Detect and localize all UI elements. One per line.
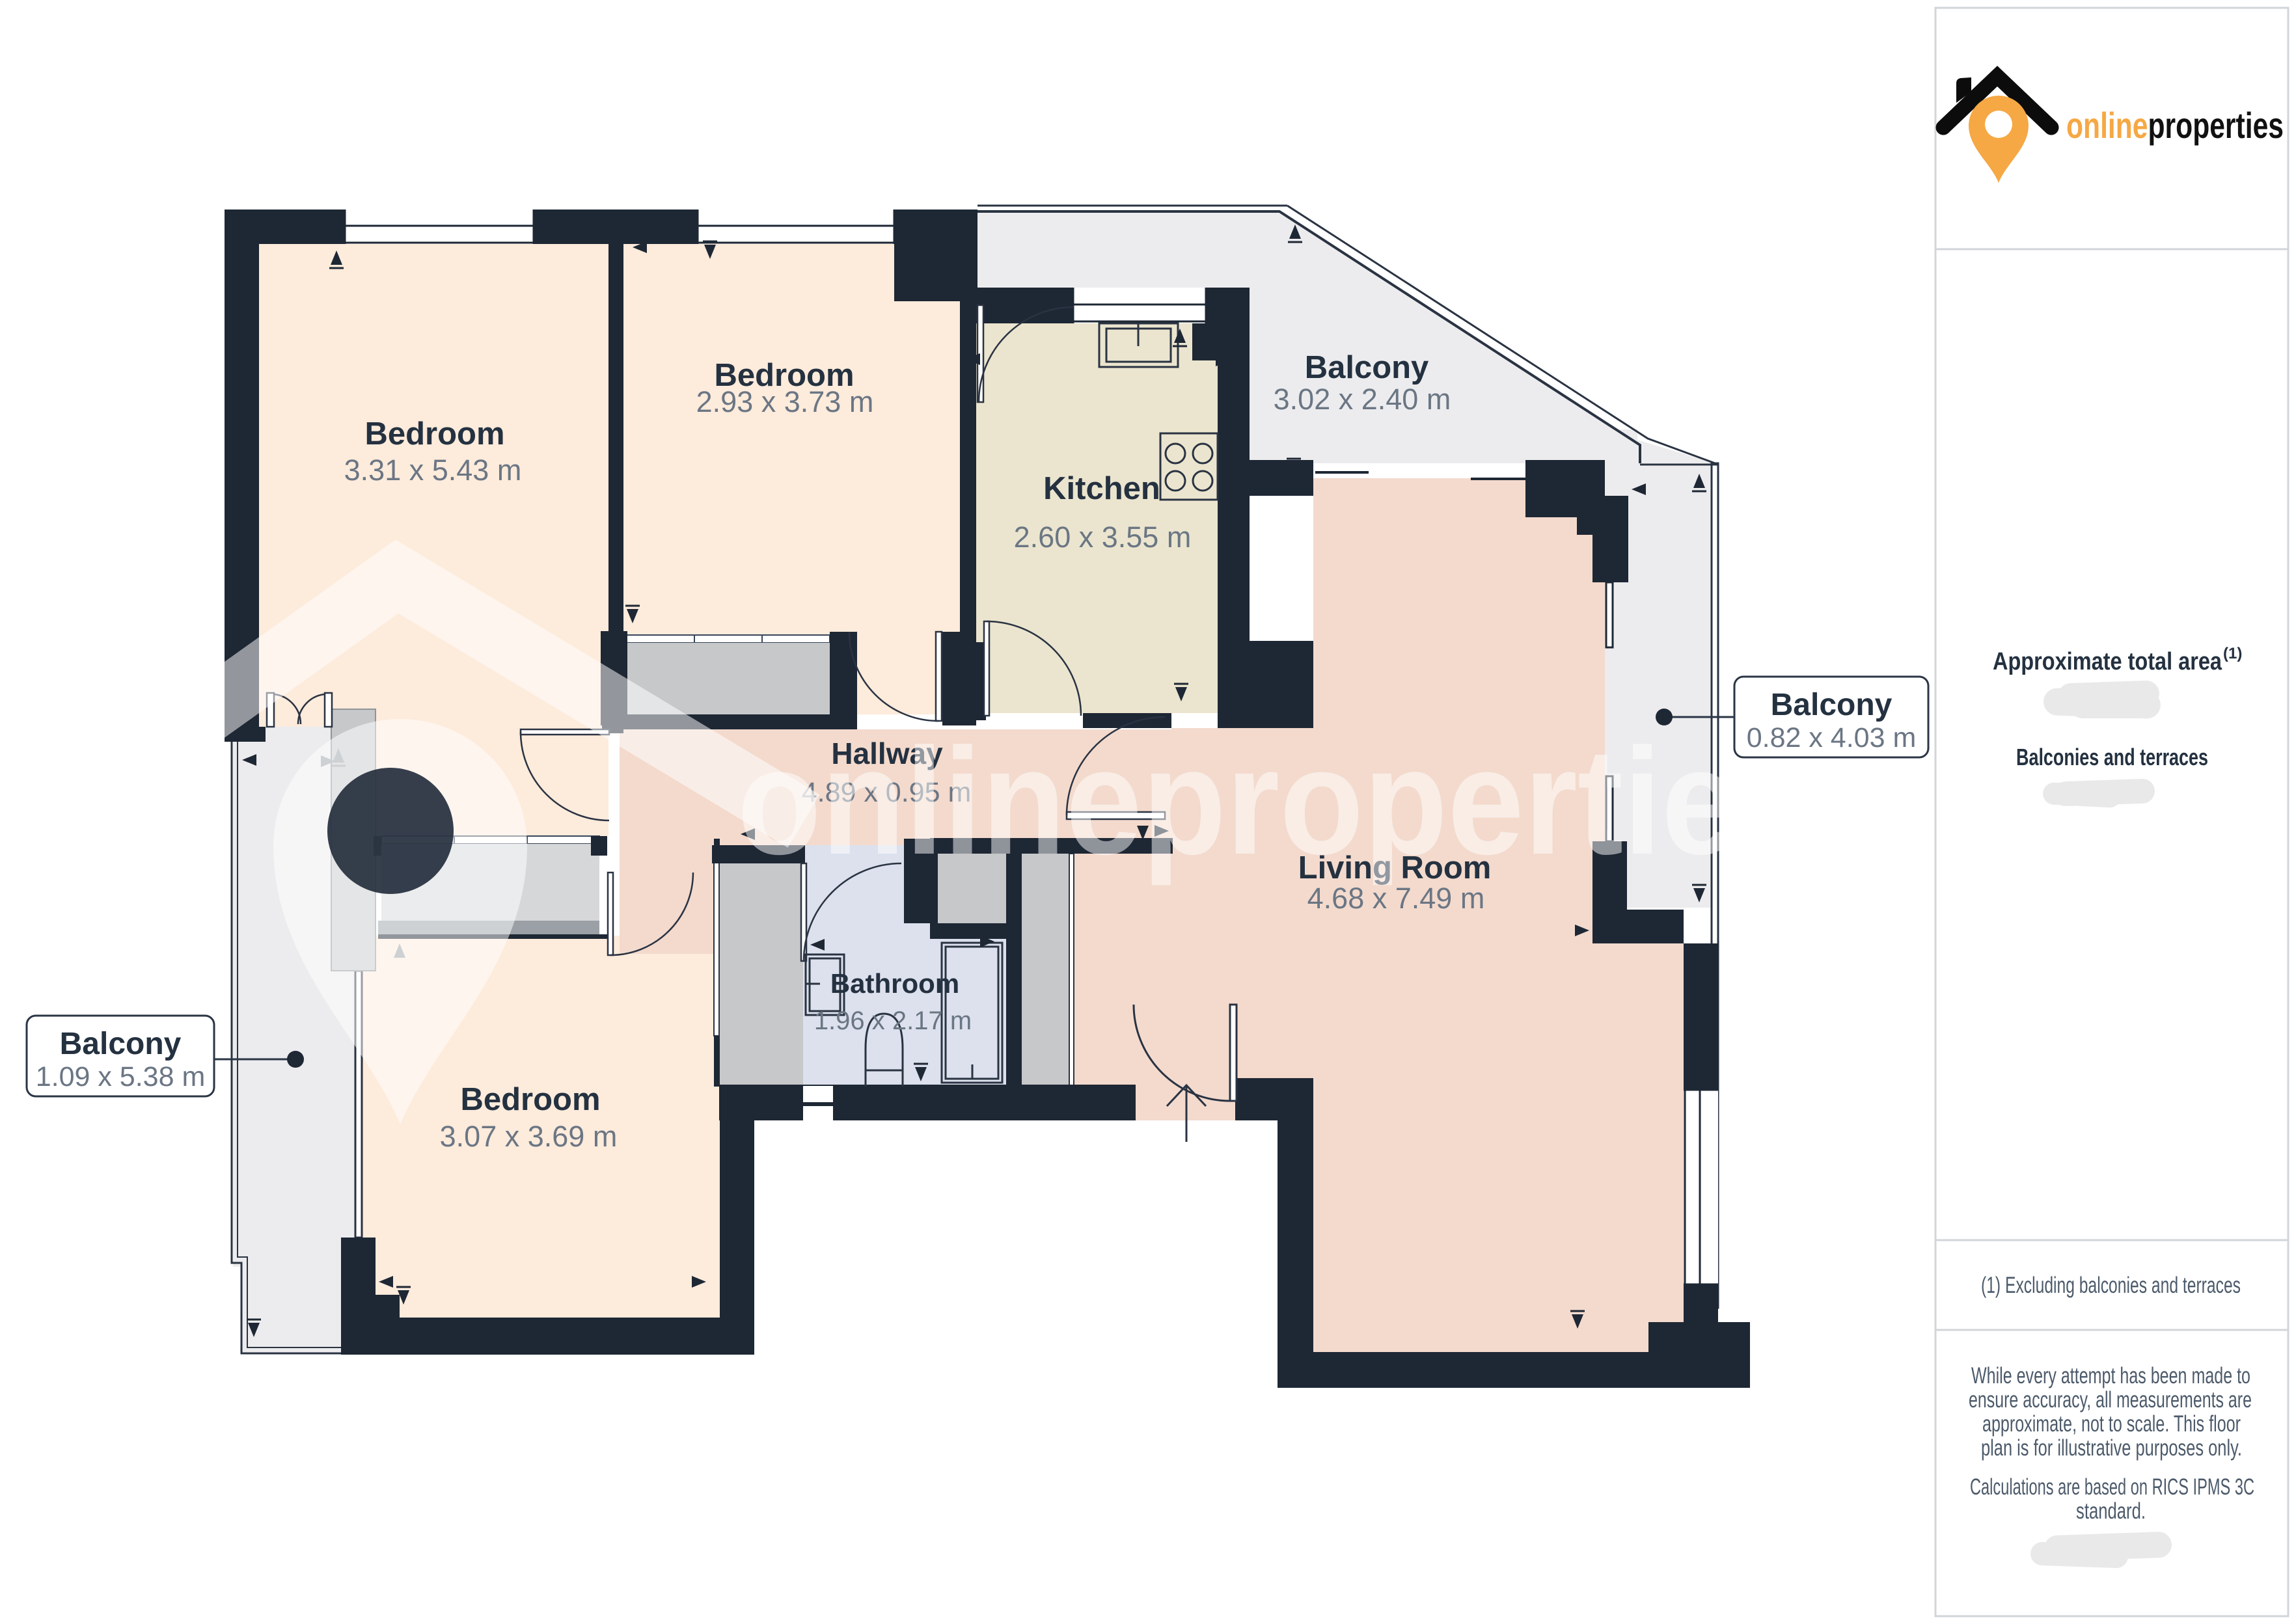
svg-text:Bathroom: Bathroom xyxy=(830,968,959,999)
svg-text:4.68 x 7.49 m: 4.68 x 7.49 m xyxy=(1307,882,1485,915)
svg-text:Balcony: Balcony xyxy=(1305,350,1429,385)
svg-text:2.60 x 3.55 m: 2.60 x 3.55 m xyxy=(1014,521,1192,554)
svg-text:Kitchen: Kitchen xyxy=(1043,471,1160,506)
svg-text:Approximate total area: Approximate total area xyxy=(1993,648,2222,675)
svg-text:ensure accuracy, all measureme: ensure accuracy, all measurements are xyxy=(1969,1387,2252,1413)
svg-text:Balcony: Balcony xyxy=(60,1027,182,1061)
svg-text:3.07 x 3.69 m: 3.07 x 3.69 m xyxy=(440,1120,618,1153)
svg-text:Calculations are based on RICS: Calculations are based on RICS IPMS 3C xyxy=(1970,1474,2254,1500)
svg-text:plan is for illustrative purpo: plan is for illustrative purposes only. xyxy=(1981,1435,2242,1461)
svg-text:3.31 x 5.43 m: 3.31 x 5.43 m xyxy=(344,453,522,487)
svg-text:Bedroom: Bedroom xyxy=(460,1082,600,1117)
svg-text:While every attempt has been m: While every attempt has been made to xyxy=(1971,1363,2250,1388)
svg-text:approximate, not to scale. Thi: approximate, not to scale. This floor xyxy=(1982,1411,2241,1437)
svg-text:1.96 x 2.17 m: 1.96 x 2.17 m xyxy=(814,1007,972,1035)
svg-text:(1): (1) xyxy=(2223,645,2242,662)
svg-text:onlineproperties: onlineproperties xyxy=(2066,105,2284,146)
svg-text:standard.: standard. xyxy=(2076,1498,2146,1524)
svg-text:Balcony: Balcony xyxy=(1771,688,1893,722)
svg-text:0.82 x 4.03 m: 0.82 x 4.03 m xyxy=(1747,722,1917,753)
svg-text:2.93 x 3.73 m: 2.93 x 3.73 m xyxy=(696,385,874,418)
svg-text:onlineproperties: onlineproperties xyxy=(737,717,1814,886)
svg-text:Bedroom: Bedroom xyxy=(364,416,504,452)
svg-text:(1) Excluding balconies and te: (1) Excluding balconies and terraces xyxy=(1981,1273,2241,1298)
svg-text:1.09 x 5.38 m: 1.09 x 5.38 m xyxy=(36,1061,206,1092)
svg-text:3.02 x 2.40 m: 3.02 x 2.40 m xyxy=(1274,383,1451,416)
svg-text:Balconies and terraces: Balconies and terraces xyxy=(2016,744,2208,770)
